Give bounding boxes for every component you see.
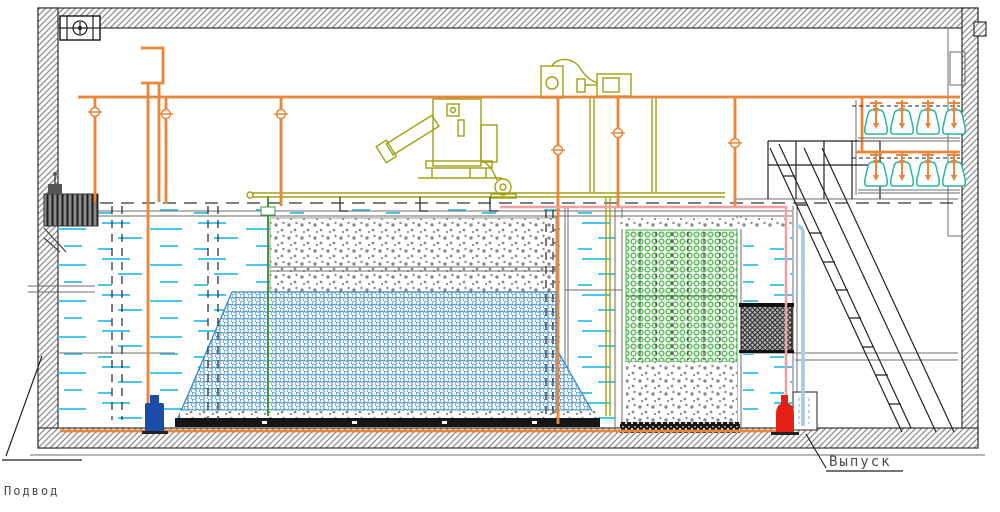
wall-stub [974, 22, 986, 36]
stair-handrails [804, 148, 954, 432]
outlet-box [793, 392, 817, 430]
section-drawing-canvas [0, 0, 1000, 512]
floating-media-bed [178, 292, 596, 418]
left-wall [38, 8, 58, 448]
inlet-label: Подвод сточных вод на очистку [4, 459, 69, 512]
top-wall [38, 8, 978, 28]
air-diffuser [865, 152, 888, 186]
air-diffuser [891, 100, 914, 134]
gravel-bed-lower [626, 362, 737, 422]
pipe-valves [88, 108, 742, 155]
ventilation-fan-icon [60, 16, 100, 40]
treatment-plant-section-drawing: Подвод сточных вод на очистку Выпуск [0, 0, 1000, 512]
right-wall [962, 8, 978, 438]
sludge-block [741, 305, 792, 352]
air-diffuser [891, 152, 914, 186]
air-diffuser [917, 100, 940, 134]
inlet-label-line: Подвод [4, 485, 69, 498]
outlet-chamber-water-upper [743, 230, 792, 304]
gravel-strip [180, 411, 596, 418]
air-diffuser [865, 100, 888, 134]
air-diffuser [917, 152, 940, 186]
gravel-bed-upper [270, 218, 556, 292]
green-fitting [261, 207, 275, 215]
gravel-strip-top [620, 218, 792, 229]
outlet-label: Выпуск [829, 454, 892, 470]
